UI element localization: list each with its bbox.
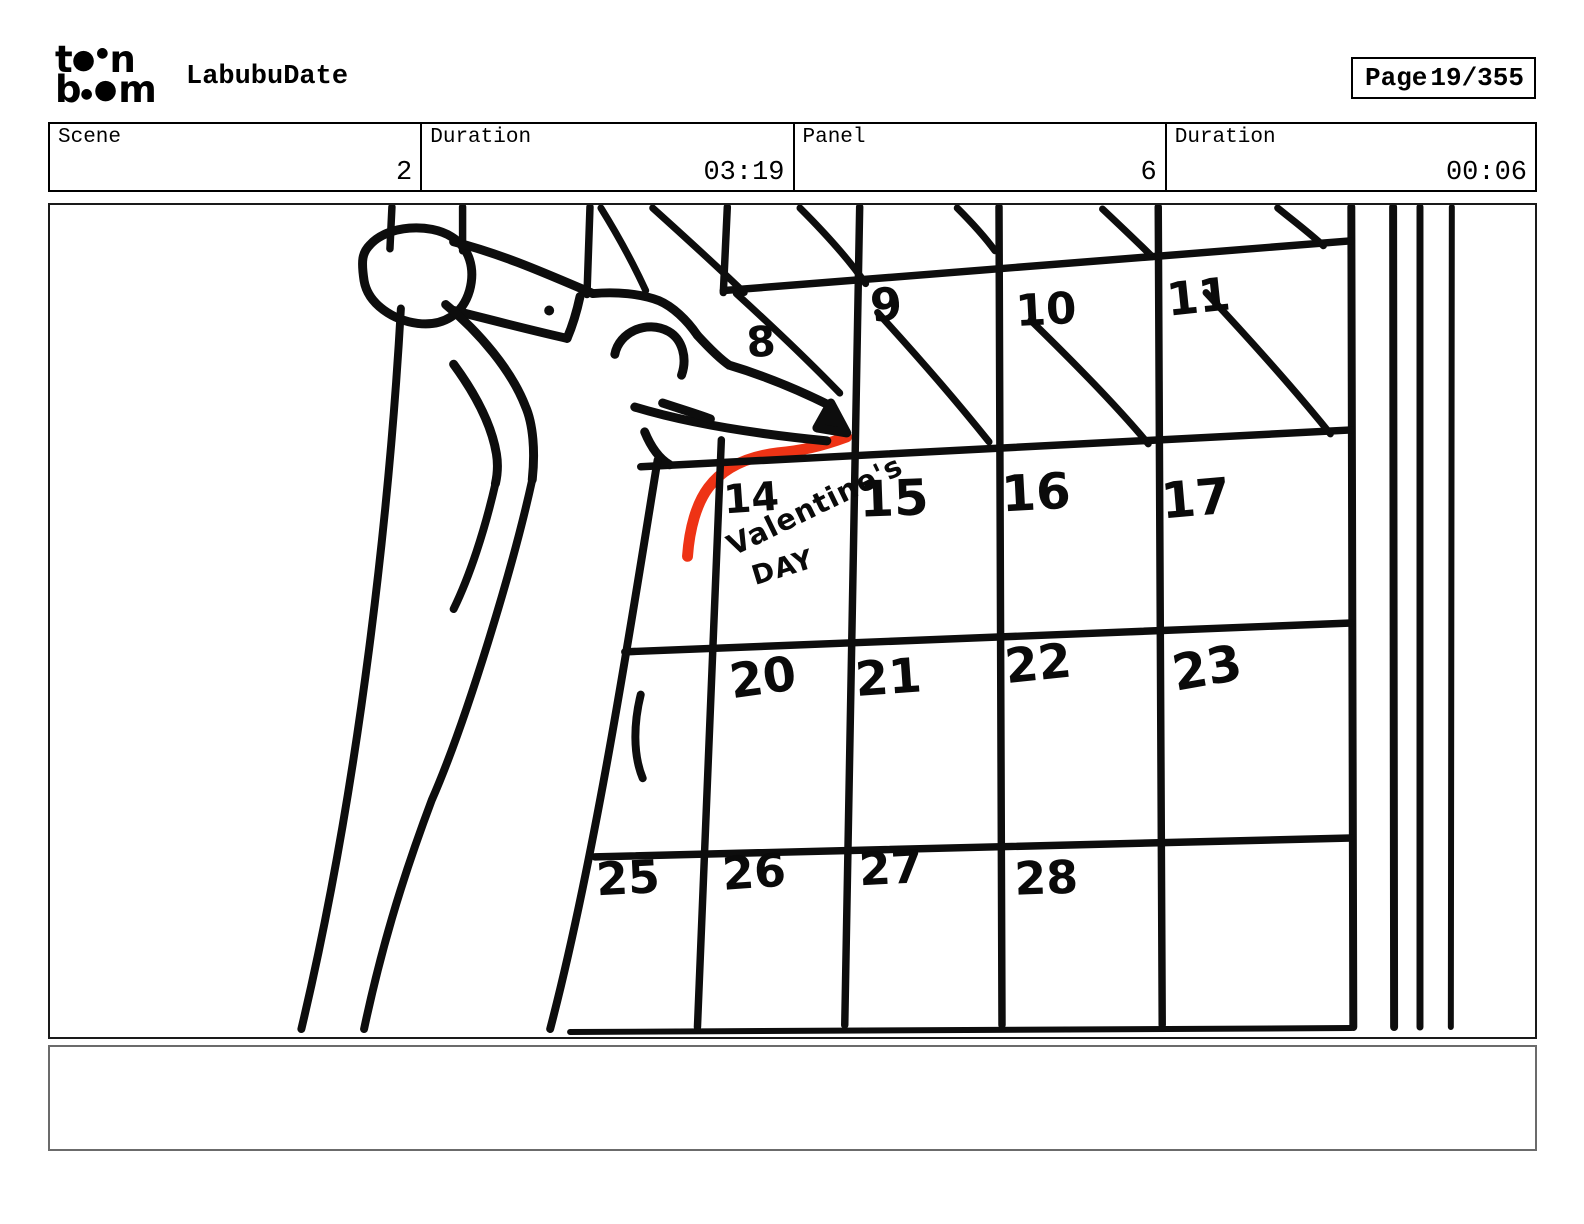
calendar-day-11: 11: [1164, 267, 1233, 326]
info-label: Duration: [1175, 126, 1276, 149]
calendar-day-26: 26: [720, 844, 787, 901]
calendar-day-23: 23: [1168, 633, 1246, 702]
calendar-day-22: 22: [1002, 633, 1074, 695]
project-title: LabubuDate: [186, 62, 348, 92]
info-value: 00:06: [1446, 158, 1527, 188]
calendar-day-20: 20: [726, 646, 799, 710]
calendar-day-8: 8: [745, 316, 777, 367]
calendar-day-9: 9: [868, 277, 904, 333]
logo-dot-icon: ●: [81, 87, 93, 101]
arm-contour: [301, 309, 401, 1030]
calendar-day-10: 10: [1014, 283, 1077, 337]
panel-info-bar: Scene 2 Duration 03:19 Panel 6 Duration …: [48, 122, 1537, 192]
arm-contour: [364, 480, 532, 1029]
logo-letter: b: [55, 71, 80, 108]
page-label: Page: [1365, 63, 1427, 93]
calendar-day-27: 27: [858, 840, 924, 896]
info-cell-scene-duration: Duration 03:19: [420, 122, 792, 192]
logo-dot-icon: ●: [96, 46, 108, 60]
marker-body-dot: [544, 306, 554, 316]
info-cell-panel: Panel 6: [793, 122, 1165, 192]
logo-letter: m: [118, 71, 155, 108]
page-value: 19/355: [1430, 63, 1524, 93]
info-cell-scene: Scene 2: [48, 122, 420, 192]
info-label: Scene: [58, 126, 121, 149]
info-cell-panel-duration: Duration 00:06: [1165, 122, 1537, 192]
marker-tip: [817, 403, 847, 433]
logo-line-2: b ● ● m: [55, 74, 185, 104]
calendar-day-28: 28: [1013, 851, 1079, 906]
partial-day-stroke: [635, 695, 642, 779]
calendar-day-25: 25: [595, 850, 661, 906]
toonboom-logo: t ● ● n b ● ● m: [55, 44, 185, 104]
info-label: Duration: [430, 126, 531, 149]
calendar-day-16: 16: [1000, 462, 1072, 524]
calendar-day-17: 17: [1159, 467, 1233, 531]
page-number-box: Page 19/355: [1351, 57, 1536, 99]
arm-contour: [454, 484, 496, 609]
crossed-out-day-slashes: [601, 208, 1330, 444]
info-value: 2: [396, 158, 412, 188]
page-edge-line: [1393, 207, 1394, 1027]
arm-contour: [550, 460, 657, 1029]
storyboard-drawing-panel: 8 9 10 11 14 15 16 17 20 21 22 23 25 26 …: [48, 203, 1537, 1039]
logo-dot-icon: ●: [94, 76, 118, 103]
page-edge-line: [1451, 207, 1452, 1027]
info-value: 03:19: [703, 158, 784, 188]
calendar-day-21: 21: [853, 648, 923, 708]
calendar-sketch: 8 9 10 11 14 15 16 17 20 21 22 23 25 26 …: [50, 205, 1535, 1037]
info-label: Panel: [803, 126, 866, 149]
info-value: 6: [1141, 158, 1157, 188]
panel-caption-box: [48, 1045, 1537, 1151]
